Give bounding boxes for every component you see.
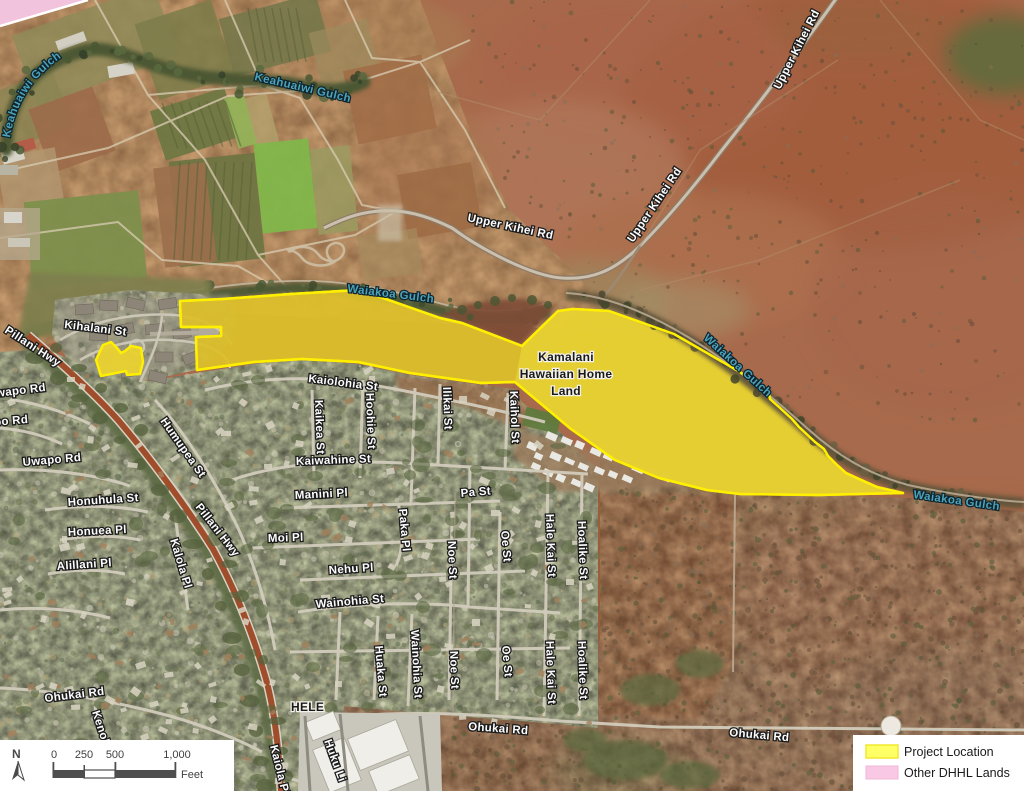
svg-text:Moi Pl: Moi Pl [268,532,304,545]
svg-text:Noe St: Noe St [445,541,458,580]
svg-text:Hoohie St: Hoohie St [363,393,377,450]
svg-text:0: 0 [51,749,57,761]
svg-text:Project Location: Project Location [904,745,994,759]
svg-text:Kaihol St: Kaihol St [507,391,521,444]
svg-text:Hoalike St: Hoalike St [575,641,589,700]
svg-text:Land: Land [551,384,581,398]
svg-text:Hale Kai St: Hale Kai St [543,641,557,705]
svg-text:500: 500 [106,749,124,761]
svg-text:Noe St: Noe St [447,651,460,690]
svg-text:Kaikea St: Kaikea St [312,400,326,455]
svg-text:Other DHHL Lands: Other DHHL Lands [904,766,1010,780]
svg-text:HELE: HELE [291,700,324,714]
svg-text:Ilikai St: Ilikai St [440,387,453,430]
svg-text:Feet: Feet [181,769,203,781]
svg-text:Hale Kai St: Hale Kai St [543,514,557,578]
svg-text:Hoalike St: Hoalike St [575,521,589,580]
svg-text:250: 250 [75,749,93,761]
svg-text:N: N [12,747,21,761]
svg-text:Hawaiian Home: Hawaiian Home [520,367,613,381]
svg-text:Kamalani: Kamalani [538,350,594,364]
svg-text:1,000: 1,000 [163,749,191,761]
